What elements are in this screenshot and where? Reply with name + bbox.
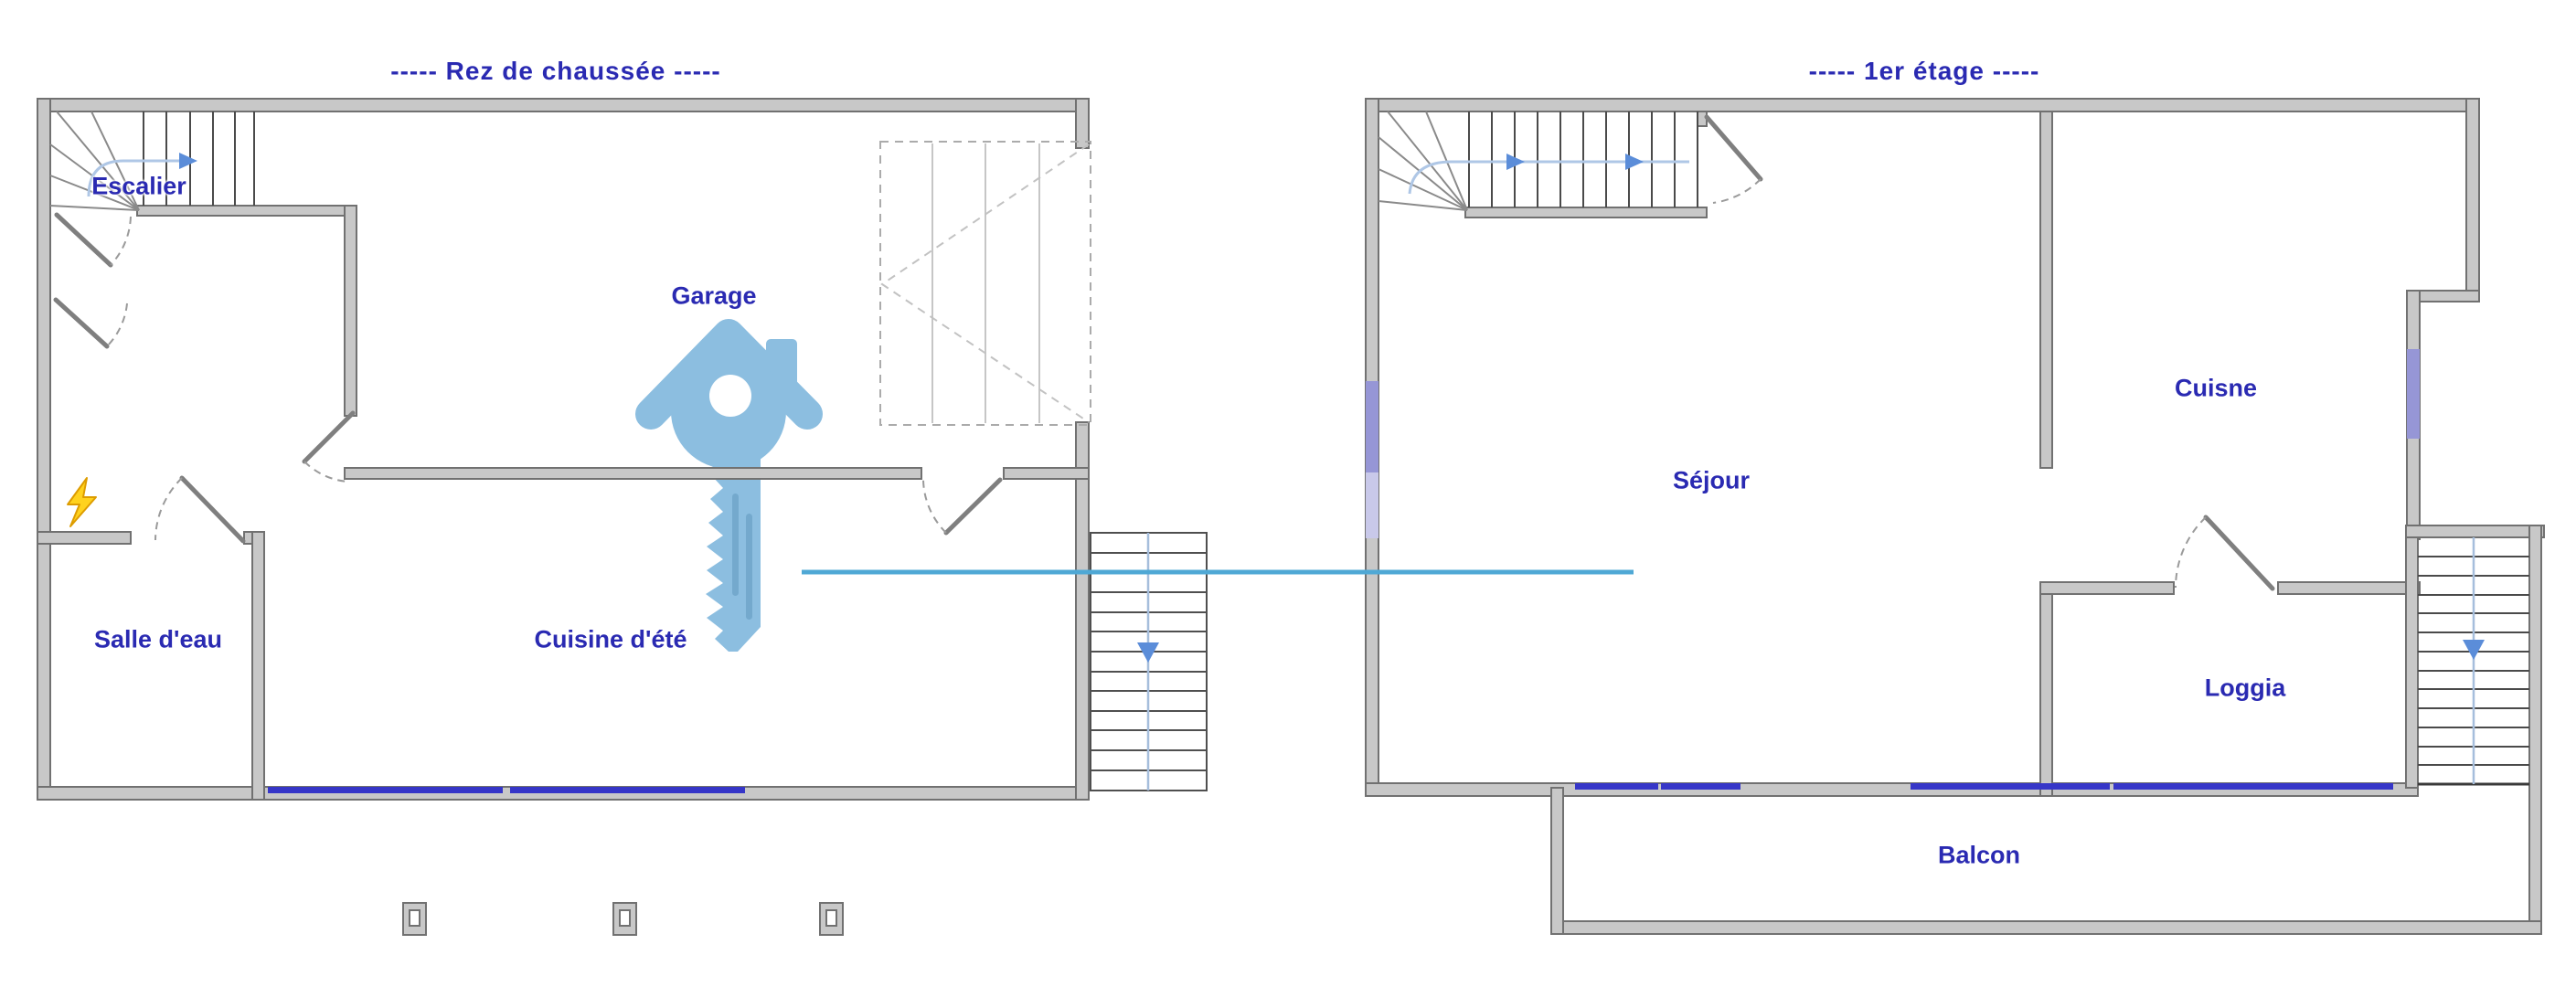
stair-up-arrow-icon — [1625, 154, 1644, 170]
ground-floor-walls — [37, 99, 1089, 800]
key-hole — [709, 375, 751, 417]
room-label-sejour: Séjour — [1673, 467, 1750, 495]
first-floor-windows — [1366, 349, 2420, 790]
ground-floor-doors — [56, 215, 1000, 541]
stair-up-arrow-icon — [179, 153, 197, 169]
floorplan-drawing — [0, 0, 2576, 987]
lightning-bolt-icon — [68, 478, 96, 526]
ground-floor-title: ----- Rez de chaussée ----- — [390, 57, 720, 86]
stair-down-arrow-icon — [2463, 640, 2485, 660]
house-key-watermark-icon — [651, 334, 807, 652]
floorplan-canvas: ----- Rez de chaussée ----- ----- 1er ét… — [0, 0, 2576, 987]
room-label-cuisine: Cuisne — [2175, 375, 2257, 403]
first-floor-plan — [1366, 99, 2544, 934]
room-label-garage: Garage — [671, 282, 756, 311]
first-floor-exterior-stairs — [2418, 537, 2529, 784]
garage-door-projection — [880, 142, 1091, 425]
room-label-balcon: Balcon — [1938, 842, 2020, 870]
room-label-cuisine-ete: Cuisine d'été — [535, 626, 687, 654]
first-floor-title: ----- 1er étage ----- — [1809, 57, 2040, 86]
first-floor-walls — [1366, 99, 2544, 934]
loggia-door — [2176, 517, 2273, 589]
room-label-salle-deau: Salle d'eau — [94, 626, 222, 654]
porch-posts — [403, 903, 843, 935]
room-label-loggia: Loggia — [2205, 674, 2286, 703]
ground-floor-plan — [37, 99, 1207, 935]
room-label-escalier: Escalier — [91, 173, 186, 201]
